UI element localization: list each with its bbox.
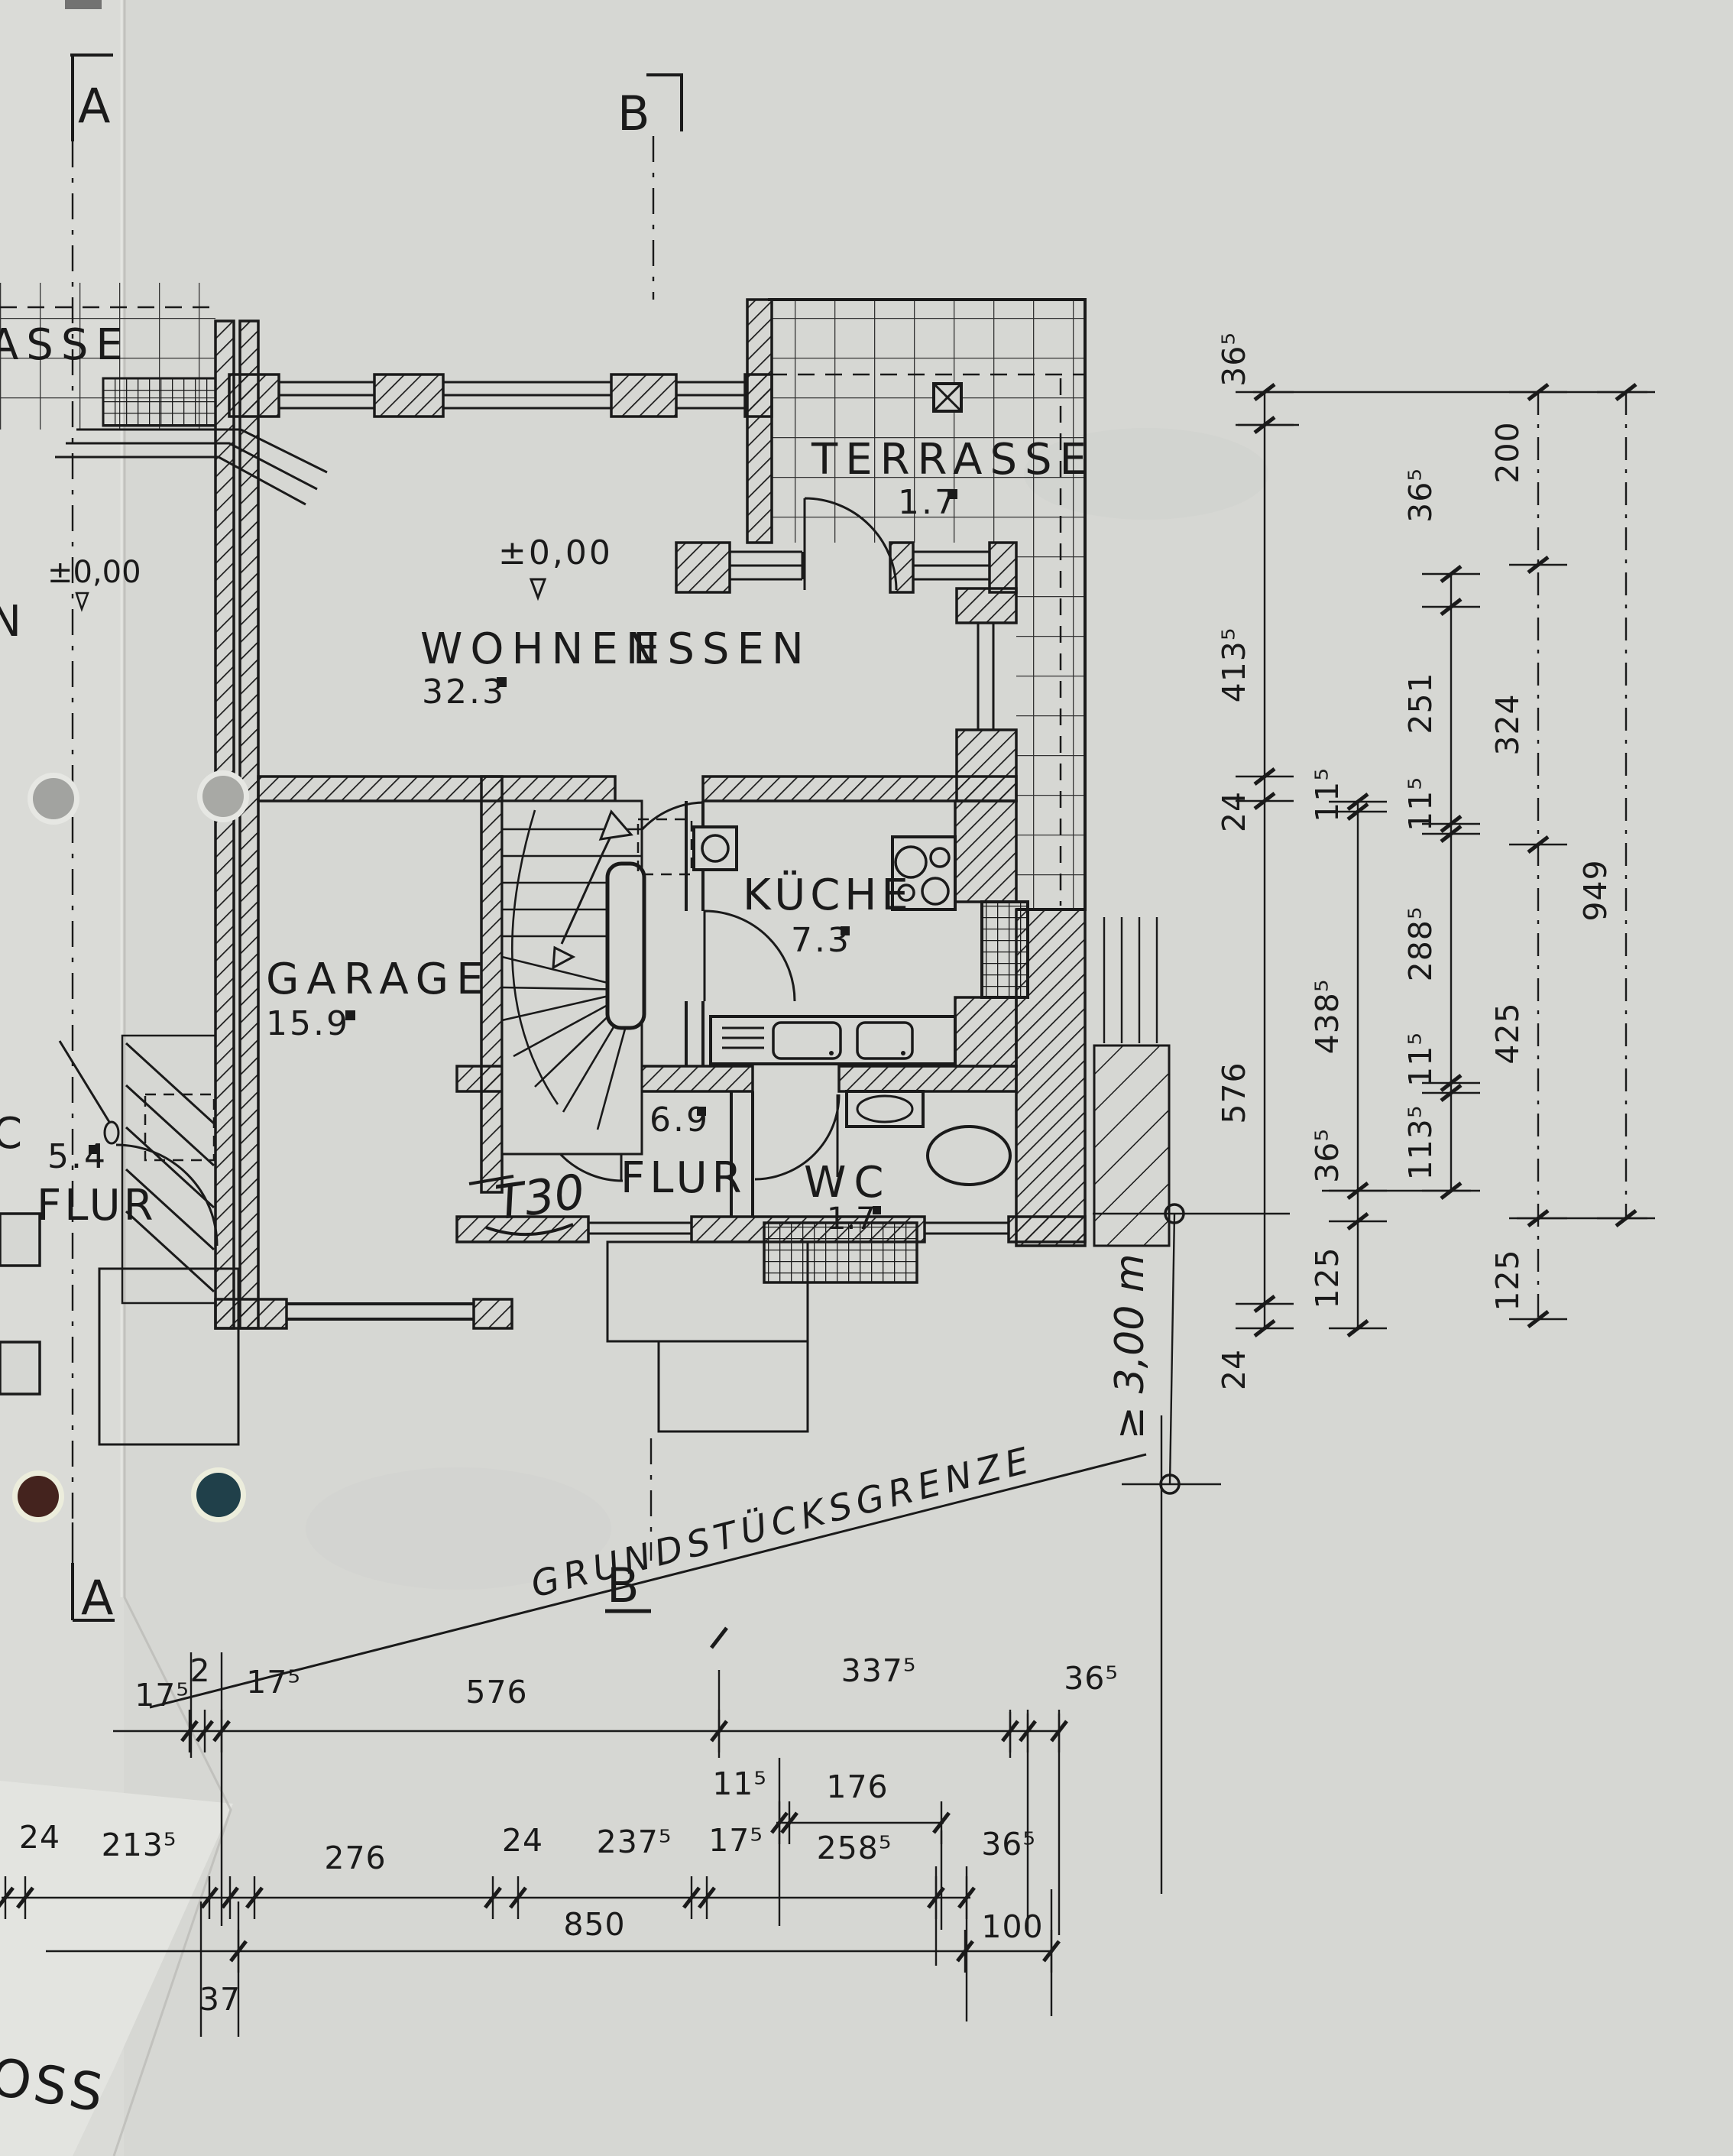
dimension-label: 576: [1216, 1062, 1252, 1123]
section-marker-a-bottom: A: [81, 1570, 113, 1626]
blueprint-sheet: WOHNEN ESSEN 32.3 TERRASSE 1.7 GARAGE 15…: [0, 0, 1733, 2156]
kitchen-sink: [711, 1016, 955, 1064]
elevation-main: ±0,00: [498, 533, 613, 572]
room-label-flur: FLUR: [620, 1153, 747, 1203]
dimension-label: 176: [826, 1769, 888, 1805]
stair-rail: [607, 864, 644, 1028]
section-marker-a-top: A: [78, 78, 110, 134]
dimension-label: 425: [1489, 1002, 1526, 1064]
neighbor-grate: [103, 378, 215, 426]
sqm-mark: [89, 1145, 98, 1154]
dimension-label: 213⁵: [102, 1827, 177, 1863]
dimension-label: 100: [981, 1908, 1043, 1945]
dimension-label: 24: [502, 1822, 543, 1859]
section-marker-b-top: B: [617, 86, 650, 141]
dimension-label: 324: [1489, 693, 1526, 755]
sqm-mark: [947, 489, 957, 499]
room-label-terrasse: TERRASSE: [811, 435, 1094, 485]
dimension-label: 17⁵: [246, 1664, 301, 1700]
dimension-label: 125: [1309, 1247, 1346, 1308]
terrace-drain-icon: [934, 384, 961, 411]
dimension-label: 11⁵: [1402, 776, 1439, 832]
dimension-label: 113⁵: [1402, 1105, 1439, 1181]
stair: [502, 801, 644, 1154]
dimension-label: 949: [1577, 859, 1614, 921]
dimension-label: 258⁵: [817, 1830, 892, 1866]
dimension-label: 438⁵: [1309, 979, 1346, 1055]
dimension-label: 36⁵: [1216, 332, 1252, 387]
wc-toilet: [928, 1127, 1010, 1185]
dimension-label: 24: [19, 1819, 60, 1856]
sqm-mark: [497, 677, 507, 687]
room-label-garage: GARAGE: [266, 955, 491, 1004]
area-garage: 15.9: [266, 1004, 350, 1043]
setback-annotation: ≥ 3,00 m: [1107, 1253, 1153, 1439]
dimension-label: 36⁵: [1064, 1660, 1119, 1697]
area-terrasse: 1.7: [898, 483, 958, 522]
area-neighbor-flur: 5.4: [47, 1137, 108, 1176]
dimension-label: 11⁵: [712, 1765, 767, 1802]
neighbor-fixture: [0, 1214, 40, 1266]
room-label-neighbor-flur: FLUR: [37, 1181, 157, 1230]
party-wall: [215, 321, 234, 1328]
dimension-label: 17⁵: [708, 1822, 763, 1859]
area-wohnen-essen: 32.3: [422, 673, 506, 712]
wc-basin: [847, 1091, 923, 1127]
dimension-label: 288⁵: [1402, 906, 1439, 982]
area-wc: 1.7: [827, 1201, 876, 1237]
dimension-label: 251: [1402, 672, 1439, 734]
hole-punch-teal: [196, 1473, 241, 1517]
dimension-label: 576: [465, 1674, 527, 1710]
dimension-label: 36⁵: [1402, 468, 1439, 523]
neighbor-wc-partial: C: [0, 1109, 30, 1159]
dimension-label: 2: [189, 1652, 210, 1689]
sqm-mark: [345, 1010, 355, 1020]
sqm-mark: [841, 926, 850, 935]
dimension-label: 413⁵: [1216, 627, 1252, 703]
dimension-label: 850: [563, 1906, 625, 1943]
dimension-label: 24: [1216, 791, 1252, 832]
room-label-kueche: KÜCHE: [743, 871, 913, 920]
dimension-label: 337⁵: [841, 1652, 917, 1689]
room-label-essen: ESSEN: [633, 624, 811, 674]
hole-punch-maroon: [18, 1476, 59, 1517]
scan-edge-mark: [65, 0, 102, 9]
dimension-label: 11⁵: [1402, 1032, 1439, 1087]
area-flur: 6.9: [649, 1101, 710, 1140]
section-marker-b-bottom: B: [607, 1558, 640, 1613]
dimension-label: 125: [1489, 1249, 1526, 1311]
sqm-mark: [697, 1107, 706, 1116]
dimension-label: 276: [324, 1840, 386, 1876]
floorplan-drawing: WOHNEN ESSEN 32.3 TERRASSE 1.7 GARAGE 15…: [0, 0, 1733, 2156]
dimension-label: 24: [1216, 1349, 1252, 1390]
room-label-wohnen: WOHNEN: [420, 624, 666, 674]
dimension-label: 11⁵: [1309, 767, 1346, 822]
dimension-label: 36⁵: [1309, 1128, 1346, 1183]
neighbor-fixture: [0, 1342, 40, 1394]
room-label-wc: WC: [804, 1158, 891, 1208]
neighbor-terrasse-partial: ASSE: [0, 320, 131, 370]
hole-punch-gray-left: [33, 778, 74, 819]
hole-punch-gray-right: [202, 776, 244, 817]
party-wall: [240, 321, 258, 1328]
dimension-label: 237⁵: [597, 1824, 672, 1860]
elevation-neighbor: ±0,00: [47, 555, 141, 590]
neighbor-room-partial: N: [0, 597, 29, 647]
dimension-label: 37: [199, 1981, 241, 2018]
sqm-mark: [873, 1206, 881, 1214]
dimension-label: 17⁵: [134, 1677, 189, 1713]
dimension-label: 200: [1489, 421, 1526, 483]
svg-text:≥ 3,00 m: ≥ 3,00 m: [1107, 1253, 1153, 1439]
